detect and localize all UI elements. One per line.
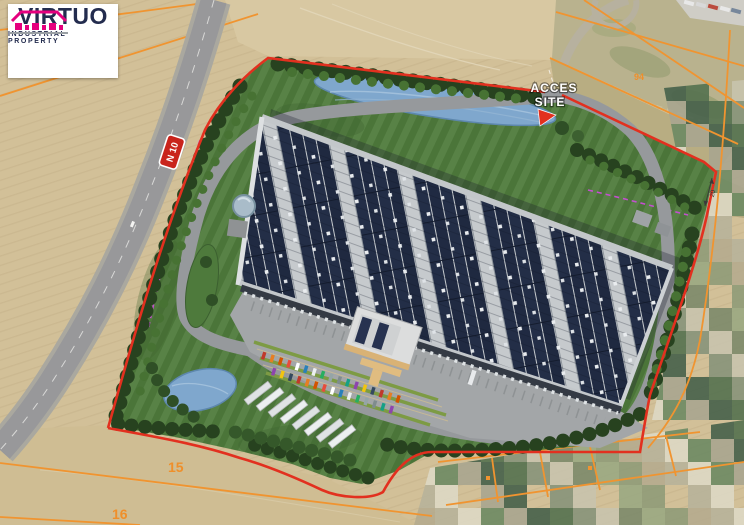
parcel-label-16: 16	[112, 506, 128, 522]
virtuo-logo: VIRTUO INDUSTRIAL PROPERTY	[8, 4, 118, 78]
warehouse-icon	[8, 9, 70, 36]
access-label-line2: SITE	[535, 95, 566, 109]
parcel-label-94: 94	[634, 72, 644, 82]
aerial-rendering: 20 15 16 94 N 10 ACCES SITE	[0, 0, 744, 525]
access-label-line1: ACCES	[530, 81, 577, 95]
parcel-label-15: 15	[168, 459, 184, 475]
site-plan-canvas: 20 15 16 94 N 10 ACCES SITE VIRTUO INDUS…	[0, 0, 744, 525]
field-north	[225, 0, 560, 60]
